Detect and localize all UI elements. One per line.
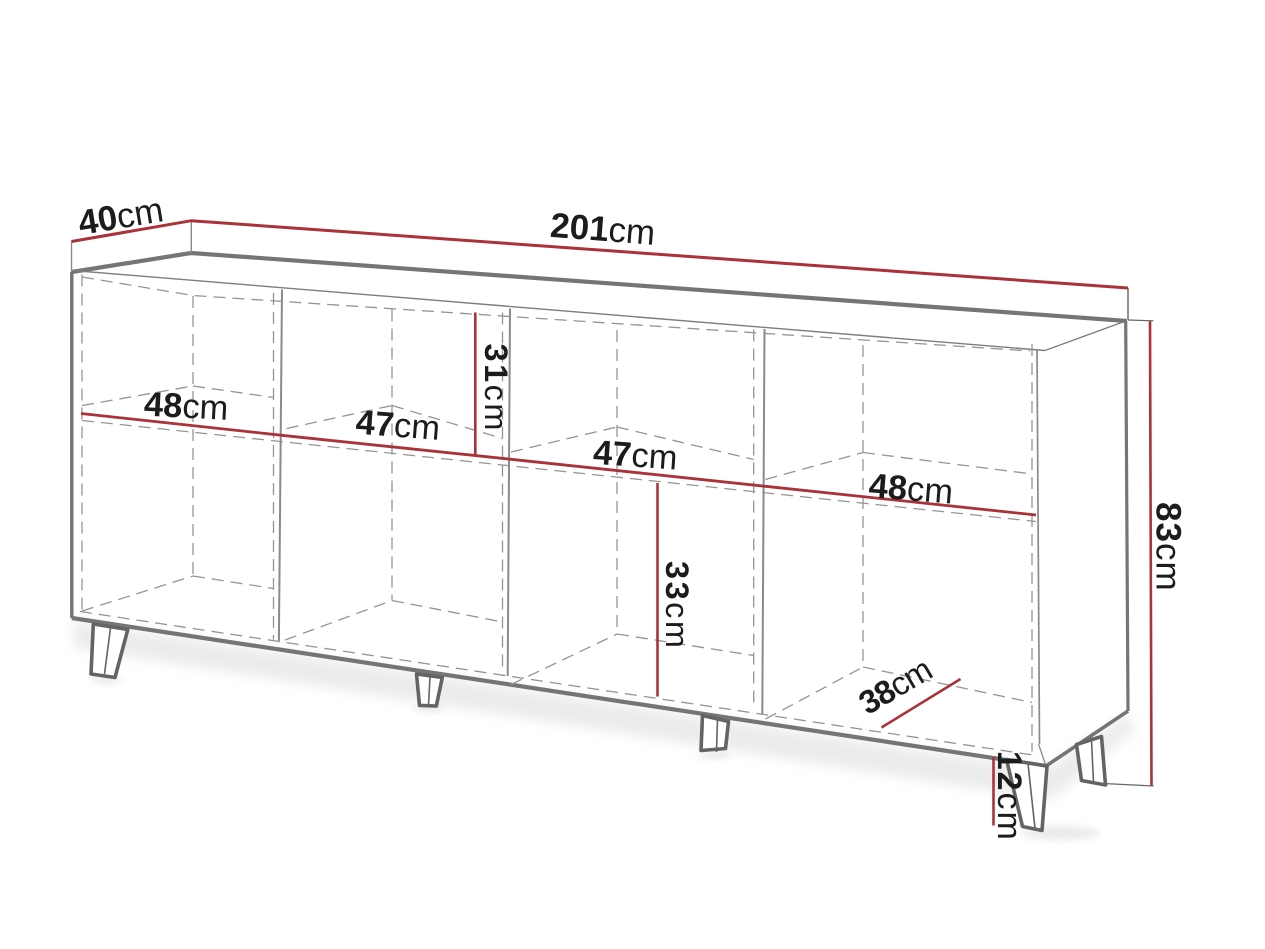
svg-text:31cm: 31cm [478,344,514,433]
svg-text:33cm: 33cm [659,561,695,650]
svg-text:47cm: 47cm [354,404,441,448]
svg-text:83cm: 83cm [1149,502,1188,592]
svg-text:201cm: 201cm [549,206,657,253]
svg-text:48cm: 48cm [867,467,954,512]
svg-text:47cm: 47cm [592,434,679,478]
svg-text:12cm: 12cm [990,751,1028,842]
svg-text:48cm: 48cm [143,386,229,428]
